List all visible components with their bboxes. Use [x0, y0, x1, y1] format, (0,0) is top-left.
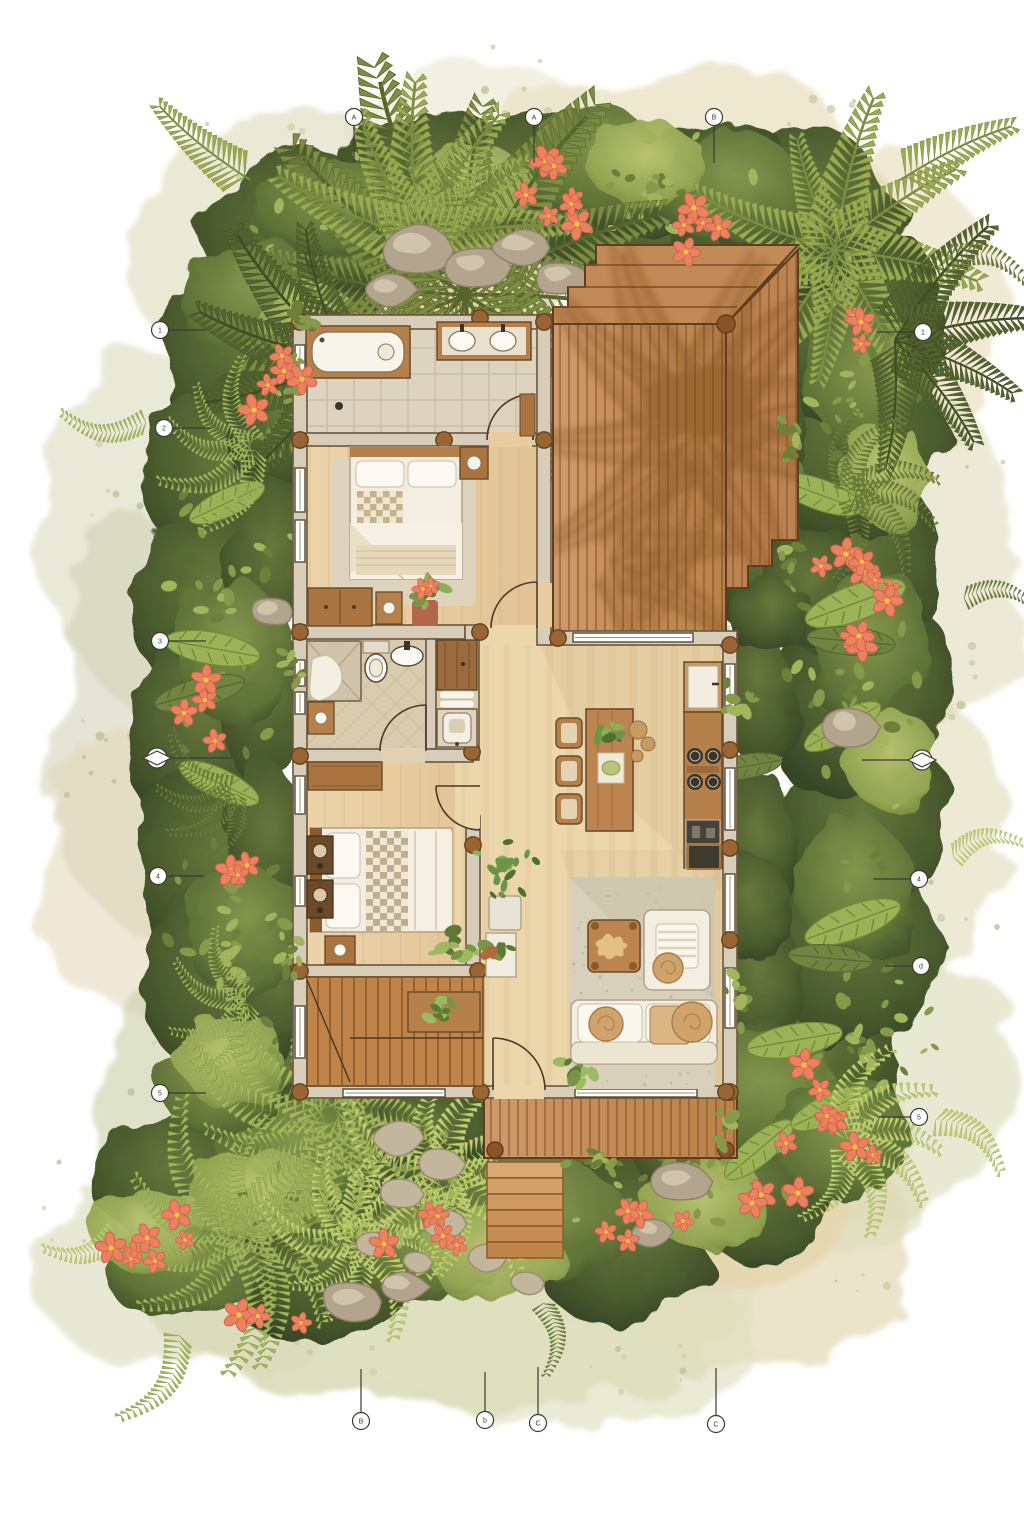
svg-text:A: A	[352, 115, 357, 122]
svg-text:b: b	[483, 1418, 487, 1425]
svg-text:d: d	[919, 964, 923, 971]
svg-text:4: 4	[156, 874, 160, 881]
svg-text:2: 2	[162, 426, 166, 433]
svg-text:A: A	[532, 115, 537, 122]
svg-text:5: 5	[917, 1115, 921, 1122]
svg-text:B: B	[712, 115, 717, 122]
svg-text:1: 1	[921, 330, 925, 337]
svg-text:4: 4	[917, 877, 921, 884]
svg-text:1: 1	[158, 328, 162, 335]
svg-text:3: 3	[158, 639, 162, 646]
svg-text:B: B	[359, 1419, 364, 1426]
svg-text:5: 5	[158, 1091, 162, 1098]
svg-text:C: C	[713, 1422, 718, 1429]
svg-text:C: C	[535, 1421, 540, 1428]
